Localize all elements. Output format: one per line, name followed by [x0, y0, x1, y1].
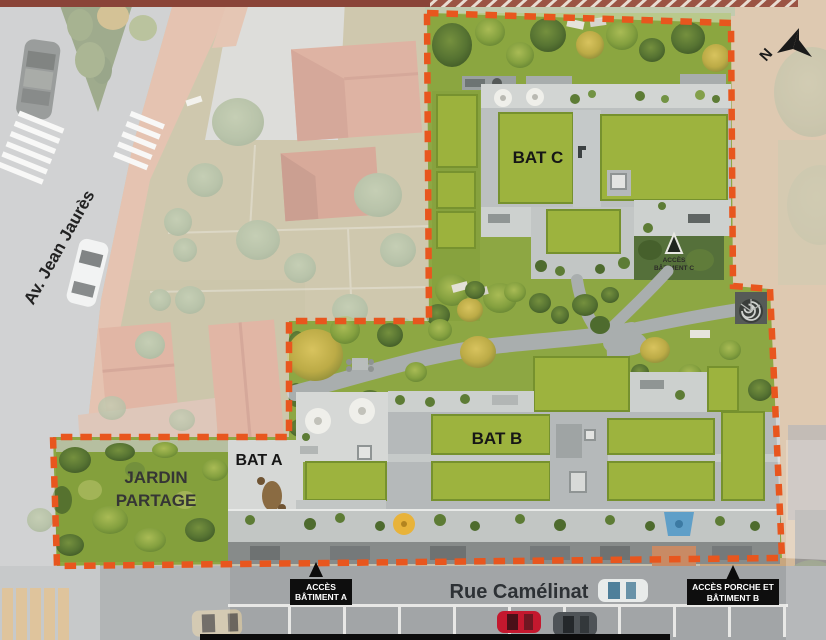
- svg-text:BÂTIMENT B: BÂTIMENT B: [707, 592, 759, 603]
- svg-text:BÂTIMENT A: BÂTIMENT A: [295, 591, 347, 602]
- svg-text:BAT A: BAT A: [235, 452, 283, 469]
- svg-text:BAT B: BAT B: [472, 429, 523, 448]
- svg-text:ACCÈS PORCHE ET: ACCÈS PORCHE ET: [692, 582, 775, 592]
- svg-text:PARTAGE: PARTAGE: [116, 491, 197, 510]
- svg-text:BÂTIMENT C: BÂTIMENT C: [654, 263, 694, 272]
- svg-text:ACCÈS: ACCÈS: [663, 255, 686, 264]
- svg-text:Rue Camélinat: Rue Camélinat: [450, 581, 589, 603]
- svg-text:JARDIN: JARDIN: [124, 468, 187, 487]
- svg-text:BAT C: BAT C: [513, 148, 564, 167]
- svg-text:ACCÈS: ACCÈS: [306, 582, 336, 592]
